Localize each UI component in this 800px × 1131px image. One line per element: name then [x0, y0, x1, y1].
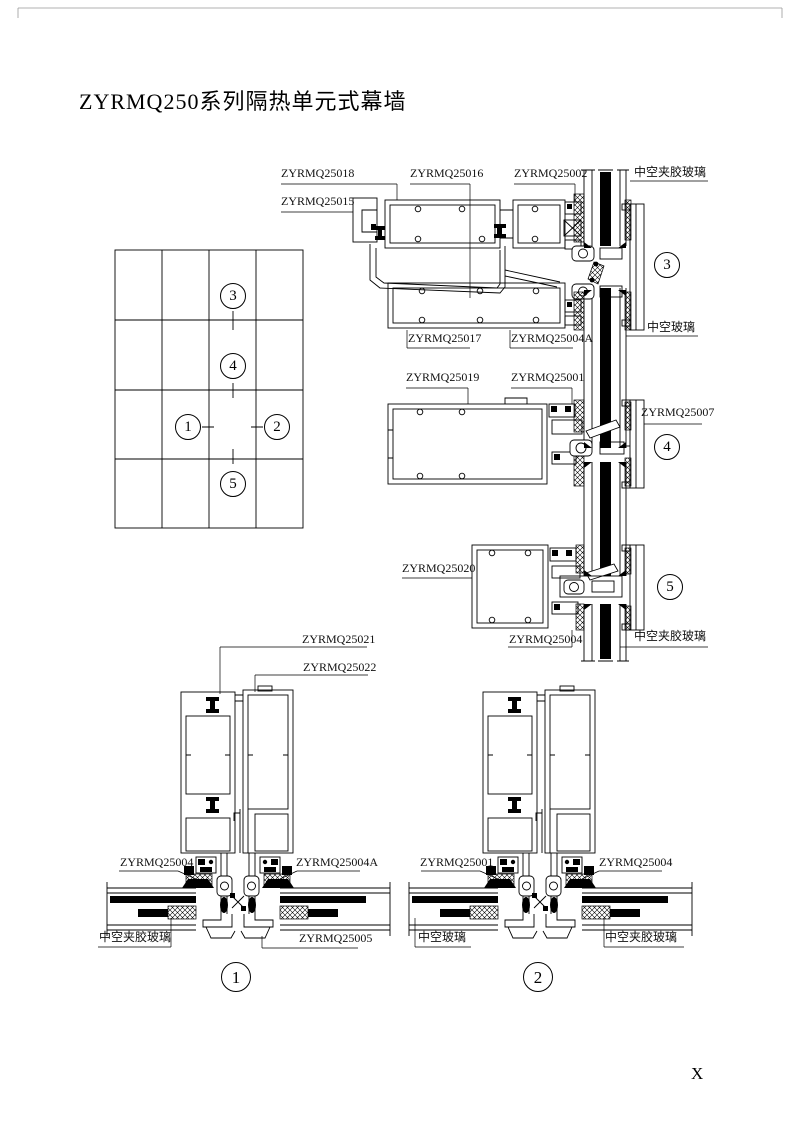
label-zyrmq25004-d2: ZYRMQ25004	[599, 856, 672, 869]
label-zyrmq25007: ZYRMQ25007	[641, 406, 714, 419]
label-laminated-insulated-glass-d1: 中空夹胶玻璃	[99, 931, 171, 944]
detail-2-badge: 2	[523, 962, 553, 992]
label-zyrmq25005: ZYRMQ25005	[299, 932, 372, 945]
label-zyrmq25004-d5: ZYRMQ25004	[509, 633, 582, 646]
label-insulated-glass-3: 中空玻璃	[647, 321, 695, 334]
detail-1-drawing	[98, 647, 390, 948]
label-laminated-insulated-glass-5: 中空夹胶玻璃	[634, 630, 706, 643]
keyplan-marker-4: 4	[220, 353, 246, 379]
detail-2-drawing	[409, 686, 692, 947]
keyplan-marker-2: 2	[264, 414, 290, 440]
sheet-frame	[18, 8, 782, 18]
label-zyrmq25018: ZYRMQ25018	[281, 167, 354, 180]
label-zyrmq25015: ZYRMQ25015	[281, 195, 354, 208]
label-insulated-glass-d2: 中空玻璃	[418, 931, 466, 944]
label-zyrmq25021: ZYRMQ25021	[302, 633, 375, 646]
page-marker: X	[691, 1064, 703, 1084]
drawing-sheet: ZYRMQ250系列隔热单元式幕墙 3 4 1 2 5 ZYRMQ25018 Z…	[0, 0, 800, 1131]
detail-3-badge: 3	[654, 252, 680, 278]
label-zyrmq25022: ZYRMQ25022	[303, 661, 376, 674]
label-zyrmq25016: ZYRMQ25016	[410, 167, 483, 180]
label-laminated-insulated-glass-d2: 中空夹胶玻璃	[605, 931, 677, 944]
keyplan-marker-1: 1	[175, 414, 201, 440]
label-zyrmq25004a-d1: ZYRMQ25004A	[296, 856, 378, 869]
label-laminated-insulated-glass-top: 中空夹胶玻璃	[634, 166, 706, 179]
label-zyrmq25020: ZYRMQ25020	[402, 562, 475, 575]
label-zyrmq25004a: ZYRMQ25004A	[511, 332, 593, 345]
key-plan	[115, 250, 303, 528]
label-zyrmq25004-d1: ZYRMQ25004	[120, 856, 193, 869]
detail-1-badge: 1	[221, 962, 251, 992]
detail-5-badge: 5	[657, 574, 683, 600]
keyplan-marker-3: 3	[220, 283, 246, 309]
label-zyrmq25002: ZYRMQ25002	[514, 167, 587, 180]
detail-4-badge: 4	[654, 434, 680, 460]
label-zyrmq25017: ZYRMQ25017	[408, 332, 481, 345]
label-zyrmq25001-d4: ZYRMQ25001	[511, 371, 584, 384]
keyplan-marker-5: 5	[220, 471, 246, 497]
label-zyrmq25001-d2: ZYRMQ25001	[420, 856, 493, 869]
page-title: ZYRMQ250系列隔热单元式幕墙	[79, 84, 406, 116]
detail-4-drawing	[388, 388, 702, 488]
label-zyrmq25019: ZYRMQ25019	[406, 371, 479, 384]
